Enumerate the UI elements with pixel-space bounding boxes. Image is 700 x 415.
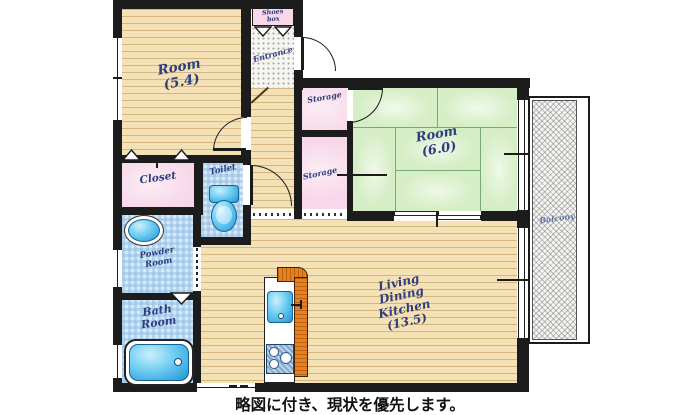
wall-tatami-ldk-right bbox=[481, 211, 518, 221]
wall-storage-divider bbox=[302, 130, 353, 137]
window-glass-line bbox=[117, 345, 118, 378]
powder-sink-basin bbox=[128, 219, 160, 242]
wall-tatami-ldk-left bbox=[347, 211, 394, 221]
sink-drain bbox=[278, 313, 284, 319]
window-sash-tick bbox=[113, 77, 122, 79]
wall-hall-storage bbox=[294, 88, 302, 219]
stove-burner bbox=[280, 352, 292, 364]
window-frame-line bbox=[518, 228, 519, 338]
sliding-door-tick bbox=[436, 211, 438, 227]
wall-closet-bottom bbox=[113, 207, 203, 215]
toilet-seat bbox=[216, 206, 232, 224]
storage-leader-line bbox=[337, 174, 387, 176]
shoes-box-door-marker bbox=[274, 26, 292, 37]
shoes-box-door-marker bbox=[254, 26, 272, 37]
stove-burner bbox=[269, 347, 279, 357]
window-sash-tick bbox=[229, 385, 237, 387]
entrance-door-leaf bbox=[301, 37, 304, 70]
powder-folding-door bbox=[196, 248, 198, 290]
window-frame-line bbox=[524, 100, 525, 210]
bathtub-drain bbox=[174, 358, 182, 366]
floor-plan: Room (5.4) Room (6.0) Living Dining Kitc… bbox=[0, 0, 700, 415]
wall-top-right-wing bbox=[294, 78, 530, 88]
kitchen-counter-side-band bbox=[294, 277, 308, 377]
wall-bath-right bbox=[193, 300, 201, 383]
window-glass-line bbox=[117, 38, 118, 120]
window-frame-line bbox=[524, 228, 525, 338]
window-sash-tick bbox=[240, 385, 248, 387]
hall-ldk-threshold-dashes bbox=[253, 213, 292, 216]
closet-door-marker bbox=[172, 149, 191, 161]
wall-toilet-bottom bbox=[196, 237, 251, 245]
tatami-joint bbox=[395, 170, 480, 171]
window-frame-line bbox=[518, 100, 519, 210]
room54-door-leaf bbox=[213, 148, 246, 151]
closet-door-divider-tick bbox=[156, 156, 158, 168]
sliding-door-panel bbox=[394, 211, 439, 216]
storage-ldk-threshold-dashes bbox=[304, 213, 345, 216]
window-glass-line bbox=[197, 387, 255, 388]
faucet-handle bbox=[300, 300, 302, 309]
caption: 略図に付き、現状を優先します。 bbox=[140, 393, 560, 415]
stove-burner bbox=[269, 359, 279, 369]
tatami-joint bbox=[437, 88, 438, 127]
tatami-joint bbox=[480, 127, 481, 211]
closet-door-marker bbox=[122, 149, 141, 161]
window-glass-line bbox=[117, 250, 118, 287]
storage-top-door-leaf bbox=[348, 87, 383, 90]
sliding-door-panel bbox=[436, 215, 481, 220]
entrance-door-arc bbox=[302, 37, 336, 71]
toilet-door-leaf bbox=[250, 165, 253, 205]
